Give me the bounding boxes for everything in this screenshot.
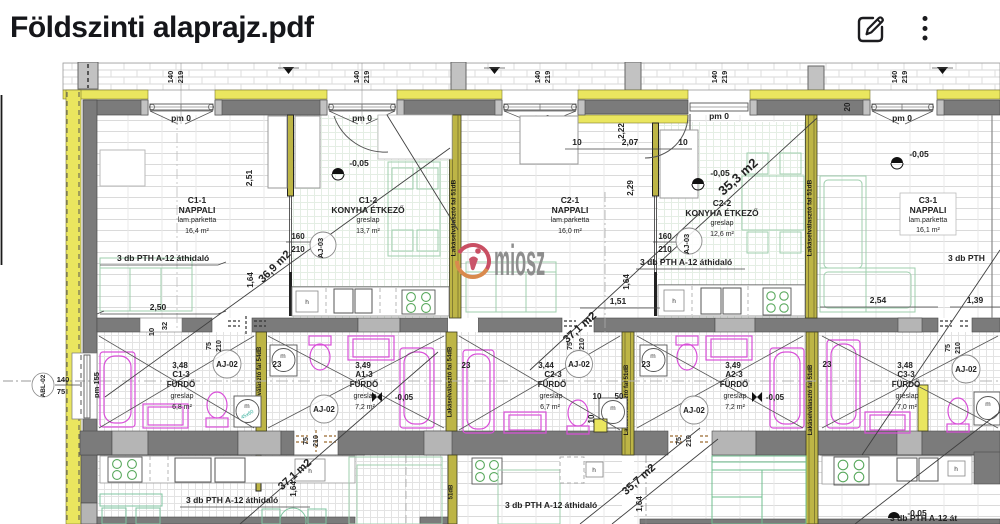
svg-text:7,2 m²: 7,2 m²: [725, 404, 746, 411]
svg-text:13,7 m²: 13,7 m²: [356, 228, 380, 235]
svg-text:m: m: [650, 353, 655, 360]
svg-text:219: 219: [900, 71, 909, 84]
svg-text:23: 23: [462, 361, 471, 370]
svg-text:Lakáselválasztó fal 51dB: Lakáselválasztó fal 51dB: [807, 179, 814, 256]
svg-text:2,50: 2,50: [150, 302, 167, 312]
svg-text:greslap: greslap: [724, 393, 747, 400]
svg-text:miosz: miosz: [494, 237, 545, 285]
svg-text:-0,05: -0,05: [710, 168, 730, 178]
svg-text:A2-3: A2-3: [725, 370, 743, 379]
svg-text:h: h: [592, 467, 596, 474]
svg-text:NAPPALI: NAPPALI: [910, 205, 947, 215]
svg-text:Lakáselválasztó fal 51dB: Lakáselválasztó fal 51dB: [808, 364, 814, 435]
svg-text:12,6 m²: 12,6 m²: [710, 231, 734, 238]
svg-text:3,49: 3,49: [725, 361, 741, 370]
svg-text:210: 210: [216, 340, 223, 352]
svg-text:1,51: 1,51: [610, 296, 627, 306]
svg-text:KONYHA ÉTKEZŐ: KONYHA ÉTKEZŐ: [685, 207, 759, 218]
svg-text:ABL-02: ABL-02: [40, 374, 47, 397]
svg-text:20: 20: [843, 102, 852, 111]
svg-text:140: 140: [890, 71, 899, 84]
svg-text:32: 32: [160, 322, 169, 330]
svg-text:51dB: 51dB: [449, 484, 455, 499]
svg-text:10: 10: [147, 328, 156, 336]
svg-text:greslap: greslap: [711, 220, 734, 227]
svg-text:-0,05: -0,05: [349, 158, 369, 168]
svg-text:219: 219: [720, 71, 729, 84]
svg-text:AJ-02: AJ-02: [683, 406, 705, 415]
svg-text:7,0 m²: 7,0 m²: [897, 404, 918, 411]
svg-text:lam.parketta: lam.parketta: [178, 217, 217, 224]
svg-text:AJ-02: AJ-02: [568, 360, 590, 369]
svg-text:m: m: [280, 353, 285, 360]
svg-text:pm 0: pm 0: [709, 111, 729, 121]
svg-text:3,48: 3,48: [172, 361, 188, 370]
svg-text:AJ-02: AJ-02: [216, 360, 238, 369]
svg-text:10: 10: [593, 392, 602, 401]
svg-text:3 db PTH A-12 áthidaló: 3 db PTH A-12 áthidaló: [186, 495, 278, 505]
svg-text:140: 140: [57, 375, 70, 384]
svg-text:1,64: 1,64: [635, 496, 644, 512]
svg-text:16,0 m²: 16,0 m²: [558, 228, 582, 235]
svg-text:1,39: 1,39: [967, 295, 984, 305]
svg-text:3 db PTH A-12 áthidaló: 3 db PTH A-12 áthidaló: [640, 257, 732, 267]
svg-text:3,49: 3,49: [355, 361, 371, 370]
svg-text:C1-3: C1-3: [172, 370, 190, 379]
svg-text:A1-3: A1-3: [355, 370, 373, 379]
svg-text:210: 210: [313, 435, 320, 447]
svg-text:greslap: greslap: [540, 393, 563, 400]
svg-text:2,51: 2,51: [244, 169, 254, 186]
svg-text:-0,05: -0,05: [907, 508, 927, 518]
svg-text:1,64: 1,64: [622, 274, 631, 290]
svg-text:10: 10: [678, 137, 688, 147]
svg-text:FÜRDŐ: FÜRDŐ: [167, 380, 195, 389]
svg-text:C3-3: C3-3: [897, 370, 915, 379]
svg-text:3,44: 3,44: [538, 361, 554, 370]
svg-text:C2-1: C2-1: [561, 195, 580, 205]
svg-text:KONYHA ÉTKEZŐ: KONYHA ÉTKEZŐ: [331, 204, 405, 215]
svg-text:210: 210: [955, 342, 962, 354]
svg-text:3,48: 3,48: [897, 361, 913, 370]
svg-text:23: 23: [642, 360, 651, 369]
svg-text:lam.parketta: lam.parketta: [909, 217, 948, 224]
svg-text:FÜRDŐ: FÜRDŐ: [720, 380, 748, 389]
svg-text:210: 210: [658, 245, 672, 254]
svg-text:C2-2: C2-2: [713, 198, 732, 208]
svg-text:AJ-03: AJ-03: [682, 234, 691, 254]
svg-text:6,8 m²: 6,8 m²: [172, 404, 193, 411]
svg-text:3 db PTH A-12 áthidaló: 3 db PTH A-12 áthidaló: [505, 500, 597, 510]
svg-text:2,29: 2,29: [626, 180, 635, 196]
svg-text:219: 219: [362, 71, 371, 84]
svg-text:h: h: [672, 298, 676, 305]
svg-text:C2-3: C2-3: [544, 370, 562, 379]
svg-text:AJ-02: AJ-02: [955, 365, 977, 374]
svg-text:210: 210: [291, 245, 305, 254]
svg-text:m: m: [985, 401, 990, 408]
svg-text:-0,05: -0,05: [909, 149, 929, 159]
svg-text:23: 23: [273, 360, 282, 369]
svg-text:greslap: greslap: [896, 393, 919, 400]
svg-text:7,2 m²: 7,2 m²: [355, 404, 376, 411]
svg-text:219: 219: [176, 71, 185, 84]
svg-text:NAPPALI: NAPPALI: [552, 205, 589, 215]
svg-text:-0,05: -0,05: [766, 393, 785, 402]
svg-text:m: m: [610, 405, 615, 412]
svg-text:3 db PTH A-12 áthidaló: 3 db PTH A-12 áthidaló: [117, 253, 209, 263]
svg-text:m: m: [244, 403, 249, 410]
svg-text:140: 140: [533, 71, 542, 84]
svg-text:C1-2: C1-2: [359, 195, 378, 205]
svg-text:140: 140: [352, 71, 361, 84]
svg-text:160: 160: [658, 232, 672, 241]
svg-text:10: 10: [587, 414, 596, 423]
svg-text:FÜRDŐ: FÜRDŐ: [350, 380, 378, 389]
svg-text:75: 75: [945, 344, 952, 352]
svg-text:210: 210: [579, 338, 586, 350]
svg-text:219: 219: [543, 71, 552, 84]
svg-text:AJ-02: AJ-02: [313, 405, 335, 414]
svg-text:23: 23: [823, 360, 832, 369]
svg-text:2,22: 2,22: [617, 123, 626, 139]
svg-text:16,1 m²: 16,1 m²: [916, 227, 940, 234]
svg-text:Lakáselválasztó fal 51dB: Lakáselválasztó fal 51dB: [451, 179, 458, 256]
svg-text:16,4 m²: 16,4 m²: [185, 228, 209, 235]
svg-text:1,64: 1,64: [289, 481, 298, 497]
svg-text:FÜRDŐ: FÜRDŐ: [538, 380, 566, 389]
svg-text:NAPPALI: NAPPALI: [179, 205, 216, 215]
svg-text:10: 10: [572, 137, 582, 147]
svg-text:C1-1: C1-1: [188, 195, 207, 205]
svg-text:75: 75: [303, 437, 310, 445]
svg-text:FÜRDŐ: FÜRDŐ: [892, 380, 920, 389]
svg-text:lam.parketta: lam.parketta: [551, 217, 590, 224]
svg-text:pm 0: pm 0: [892, 113, 912, 123]
svg-text:greslap: greslap: [357, 217, 380, 224]
svg-text:6,7 m²: 6,7 m²: [540, 404, 561, 411]
svg-text:-0,05: -0,05: [395, 393, 414, 402]
svg-text:3 db PTH: 3 db PTH: [948, 253, 985, 263]
svg-text:50: 50: [615, 392, 624, 401]
svg-text:h: h: [305, 299, 309, 306]
svg-text:1,64: 1,64: [246, 272, 255, 288]
svg-text:75: 75: [57, 387, 65, 396]
svg-text:2,54: 2,54: [870, 295, 887, 305]
svg-text:75: 75: [206, 342, 213, 350]
svg-text:140: 140: [166, 71, 175, 84]
svg-text:greslap: greslap: [171, 393, 194, 400]
svg-text:AJ-03: AJ-03: [316, 238, 325, 258]
svg-text:C3-1: C3-1: [919, 195, 938, 205]
svg-text:160: 160: [291, 232, 305, 241]
svg-text:140: 140: [710, 71, 719, 84]
svg-text:h: h: [954, 466, 958, 473]
svg-text:75: 75: [676, 437, 683, 445]
svg-text:Lakáselválasztó fal 54dB: Lakáselválasztó fal 54dB: [448, 346, 454, 417]
